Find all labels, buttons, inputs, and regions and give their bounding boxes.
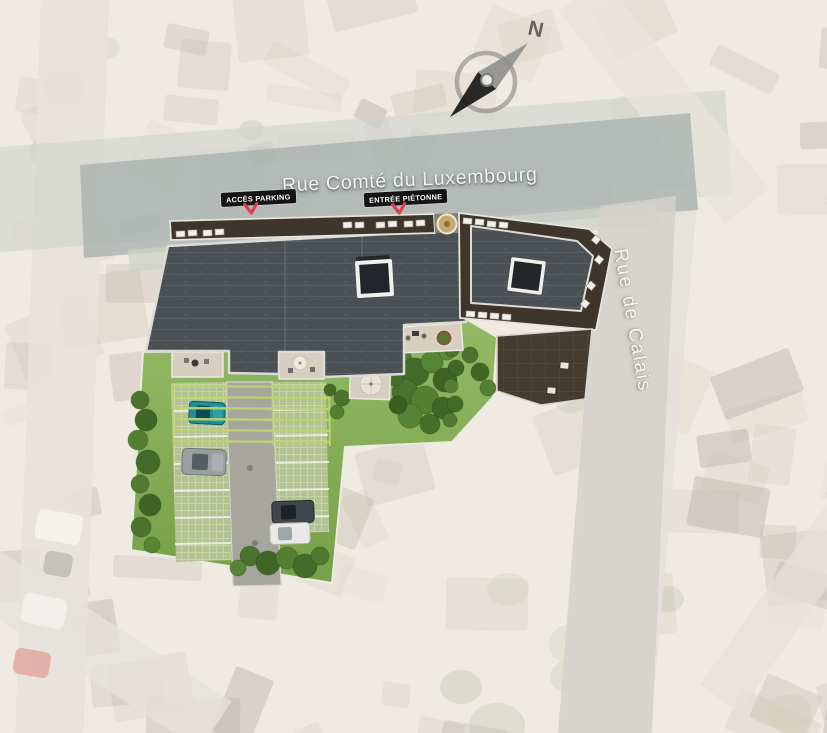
aisle-drain	[247, 465, 253, 471]
grey-car	[182, 448, 227, 476]
corner-roof-skylight	[509, 259, 544, 293]
teal-car	[188, 401, 225, 425]
main-roof-skylight	[357, 261, 392, 296]
pedestrian-entrance-arrow-icon	[391, 201, 408, 216]
pedestrian-entrance	[434, 213, 460, 234]
dark-suv	[272, 500, 315, 523]
development-site-plan	[0, 0, 827, 733]
site-plan-canvas: Rue Comté du Luxembourg Rue de Calais AC…	[0, 0, 827, 733]
aisle-drain	[252, 540, 258, 546]
compass-icon	[450, 43, 528, 117]
white-car	[270, 522, 311, 544]
corner-building	[459, 213, 612, 330]
parking-access-arrow-icon	[243, 201, 260, 216]
flat-roof-annex	[497, 329, 592, 405]
